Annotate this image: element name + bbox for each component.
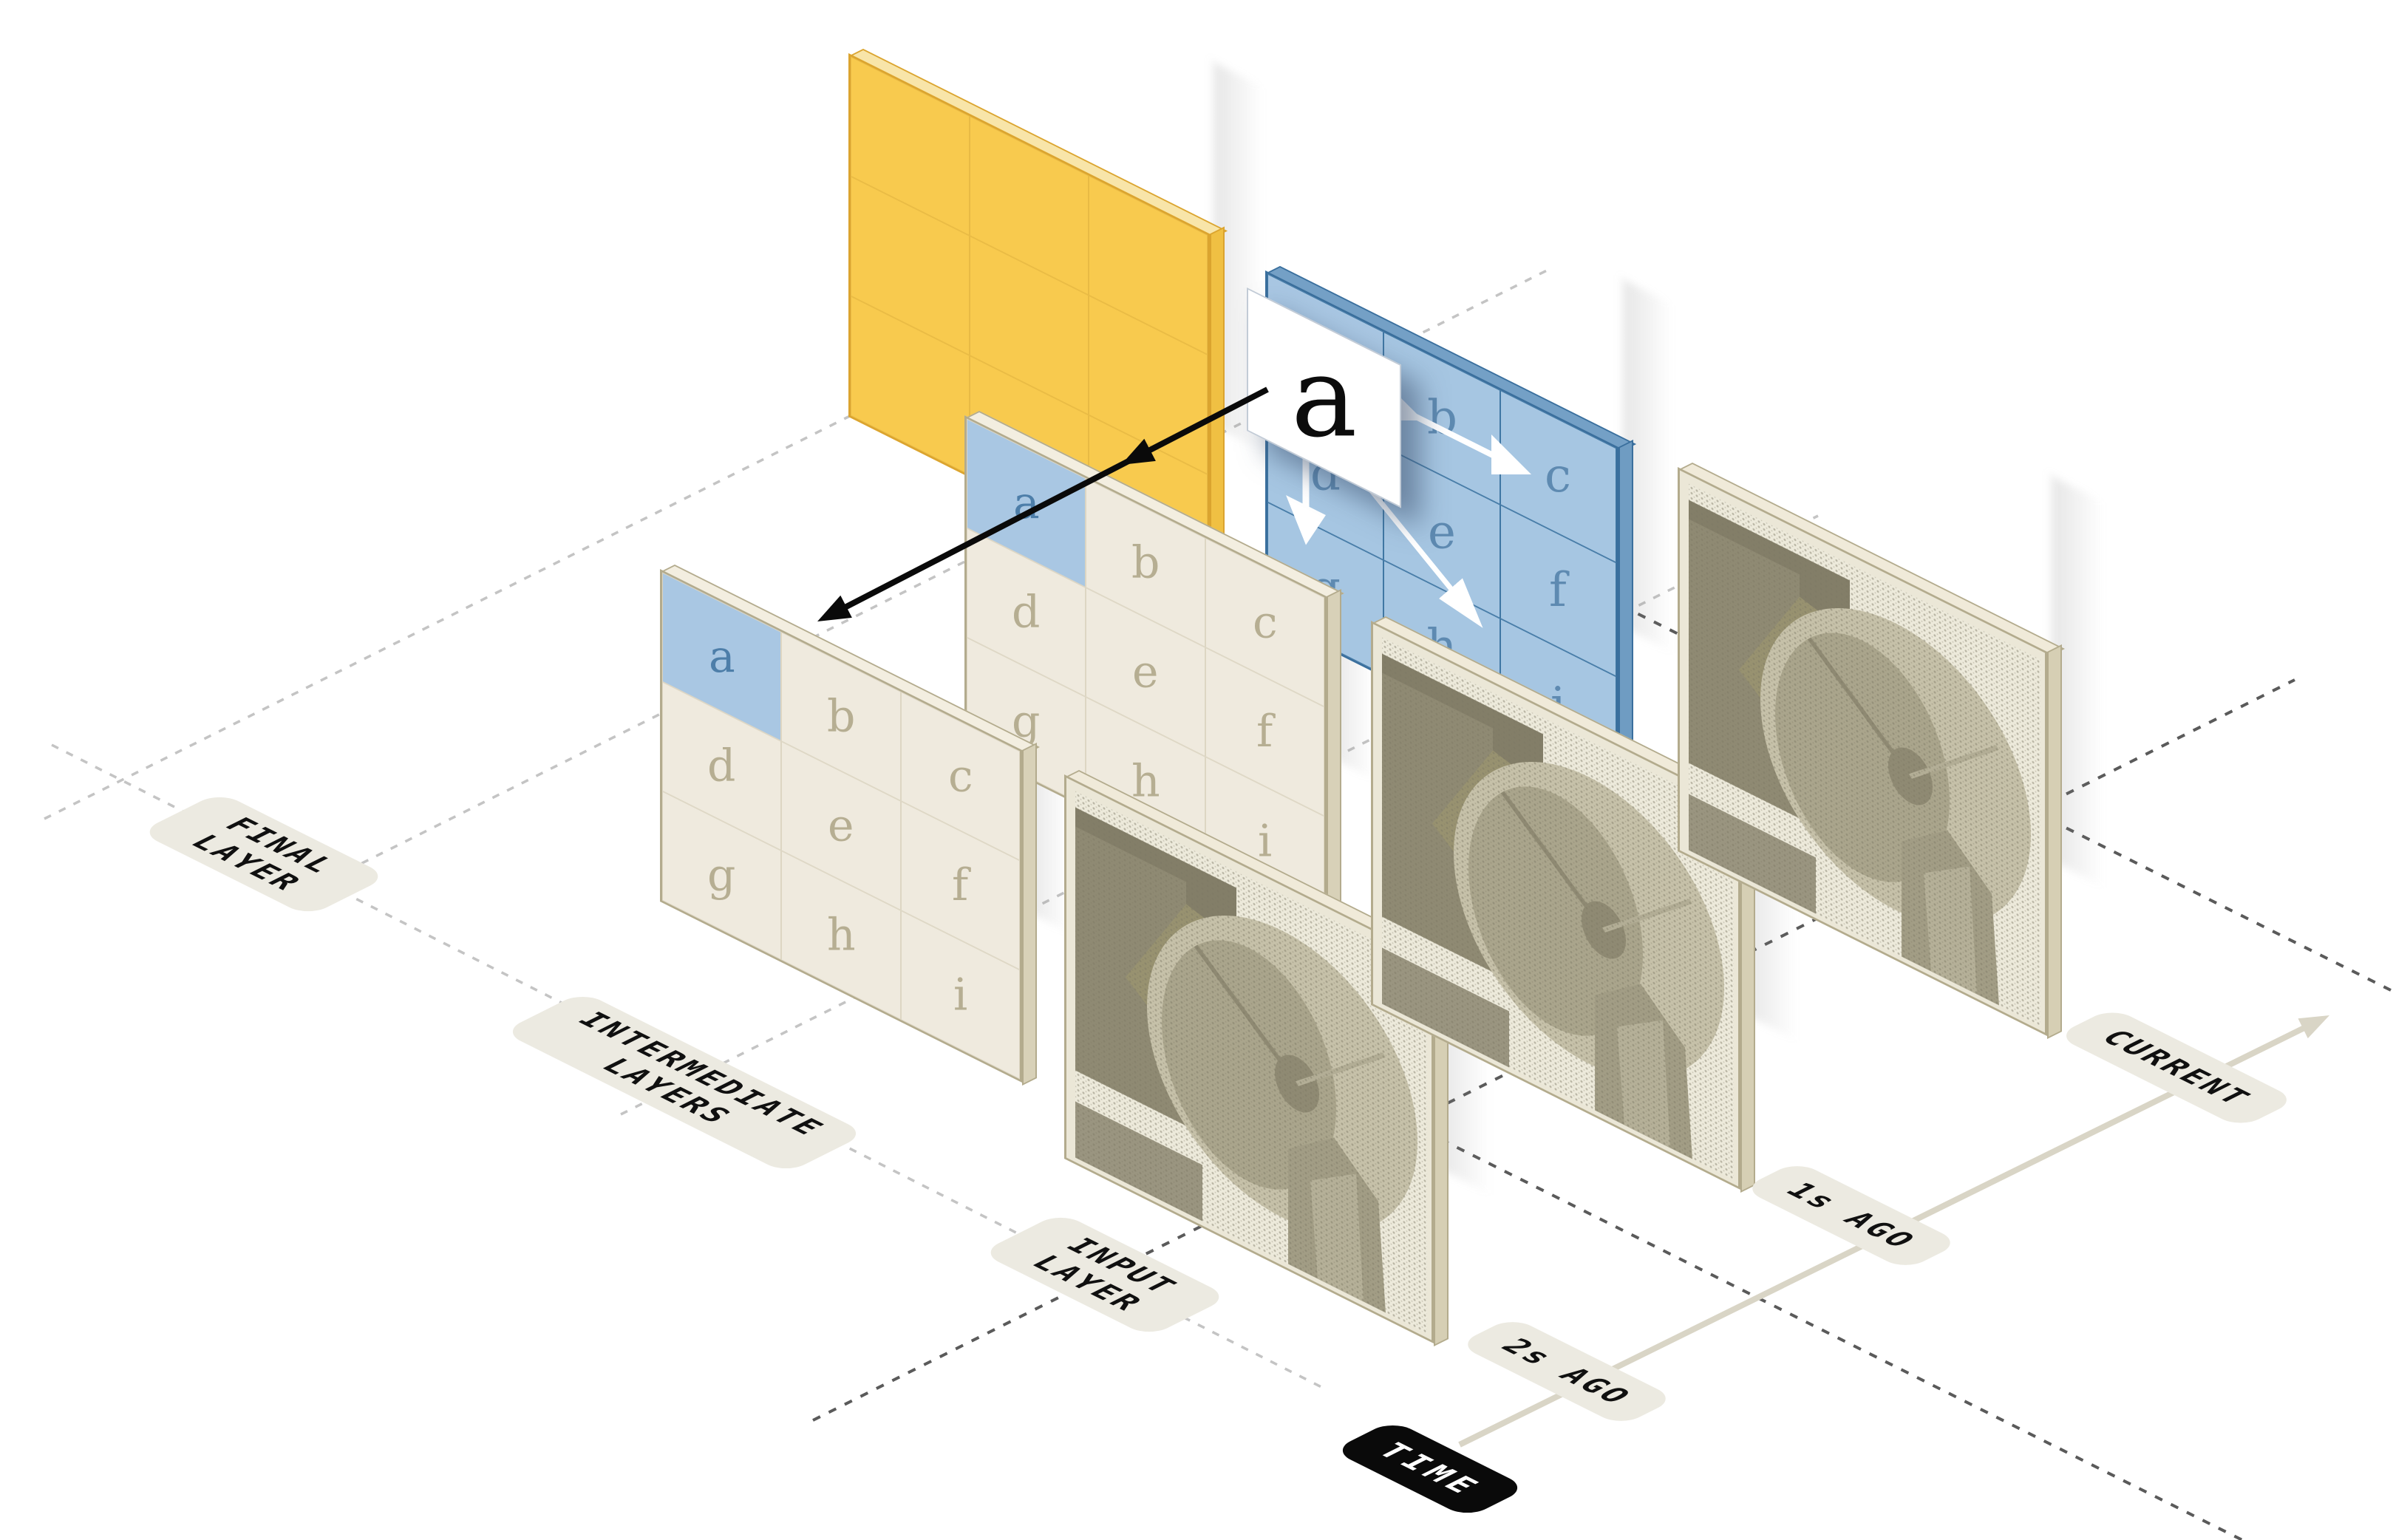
arrowhead-mid-icon — [1115, 439, 1156, 476]
diagram-canvas: a b c d e f g h i a a b c d — [0, 0, 2393, 1540]
arrowhead-end-icon — [811, 596, 852, 633]
